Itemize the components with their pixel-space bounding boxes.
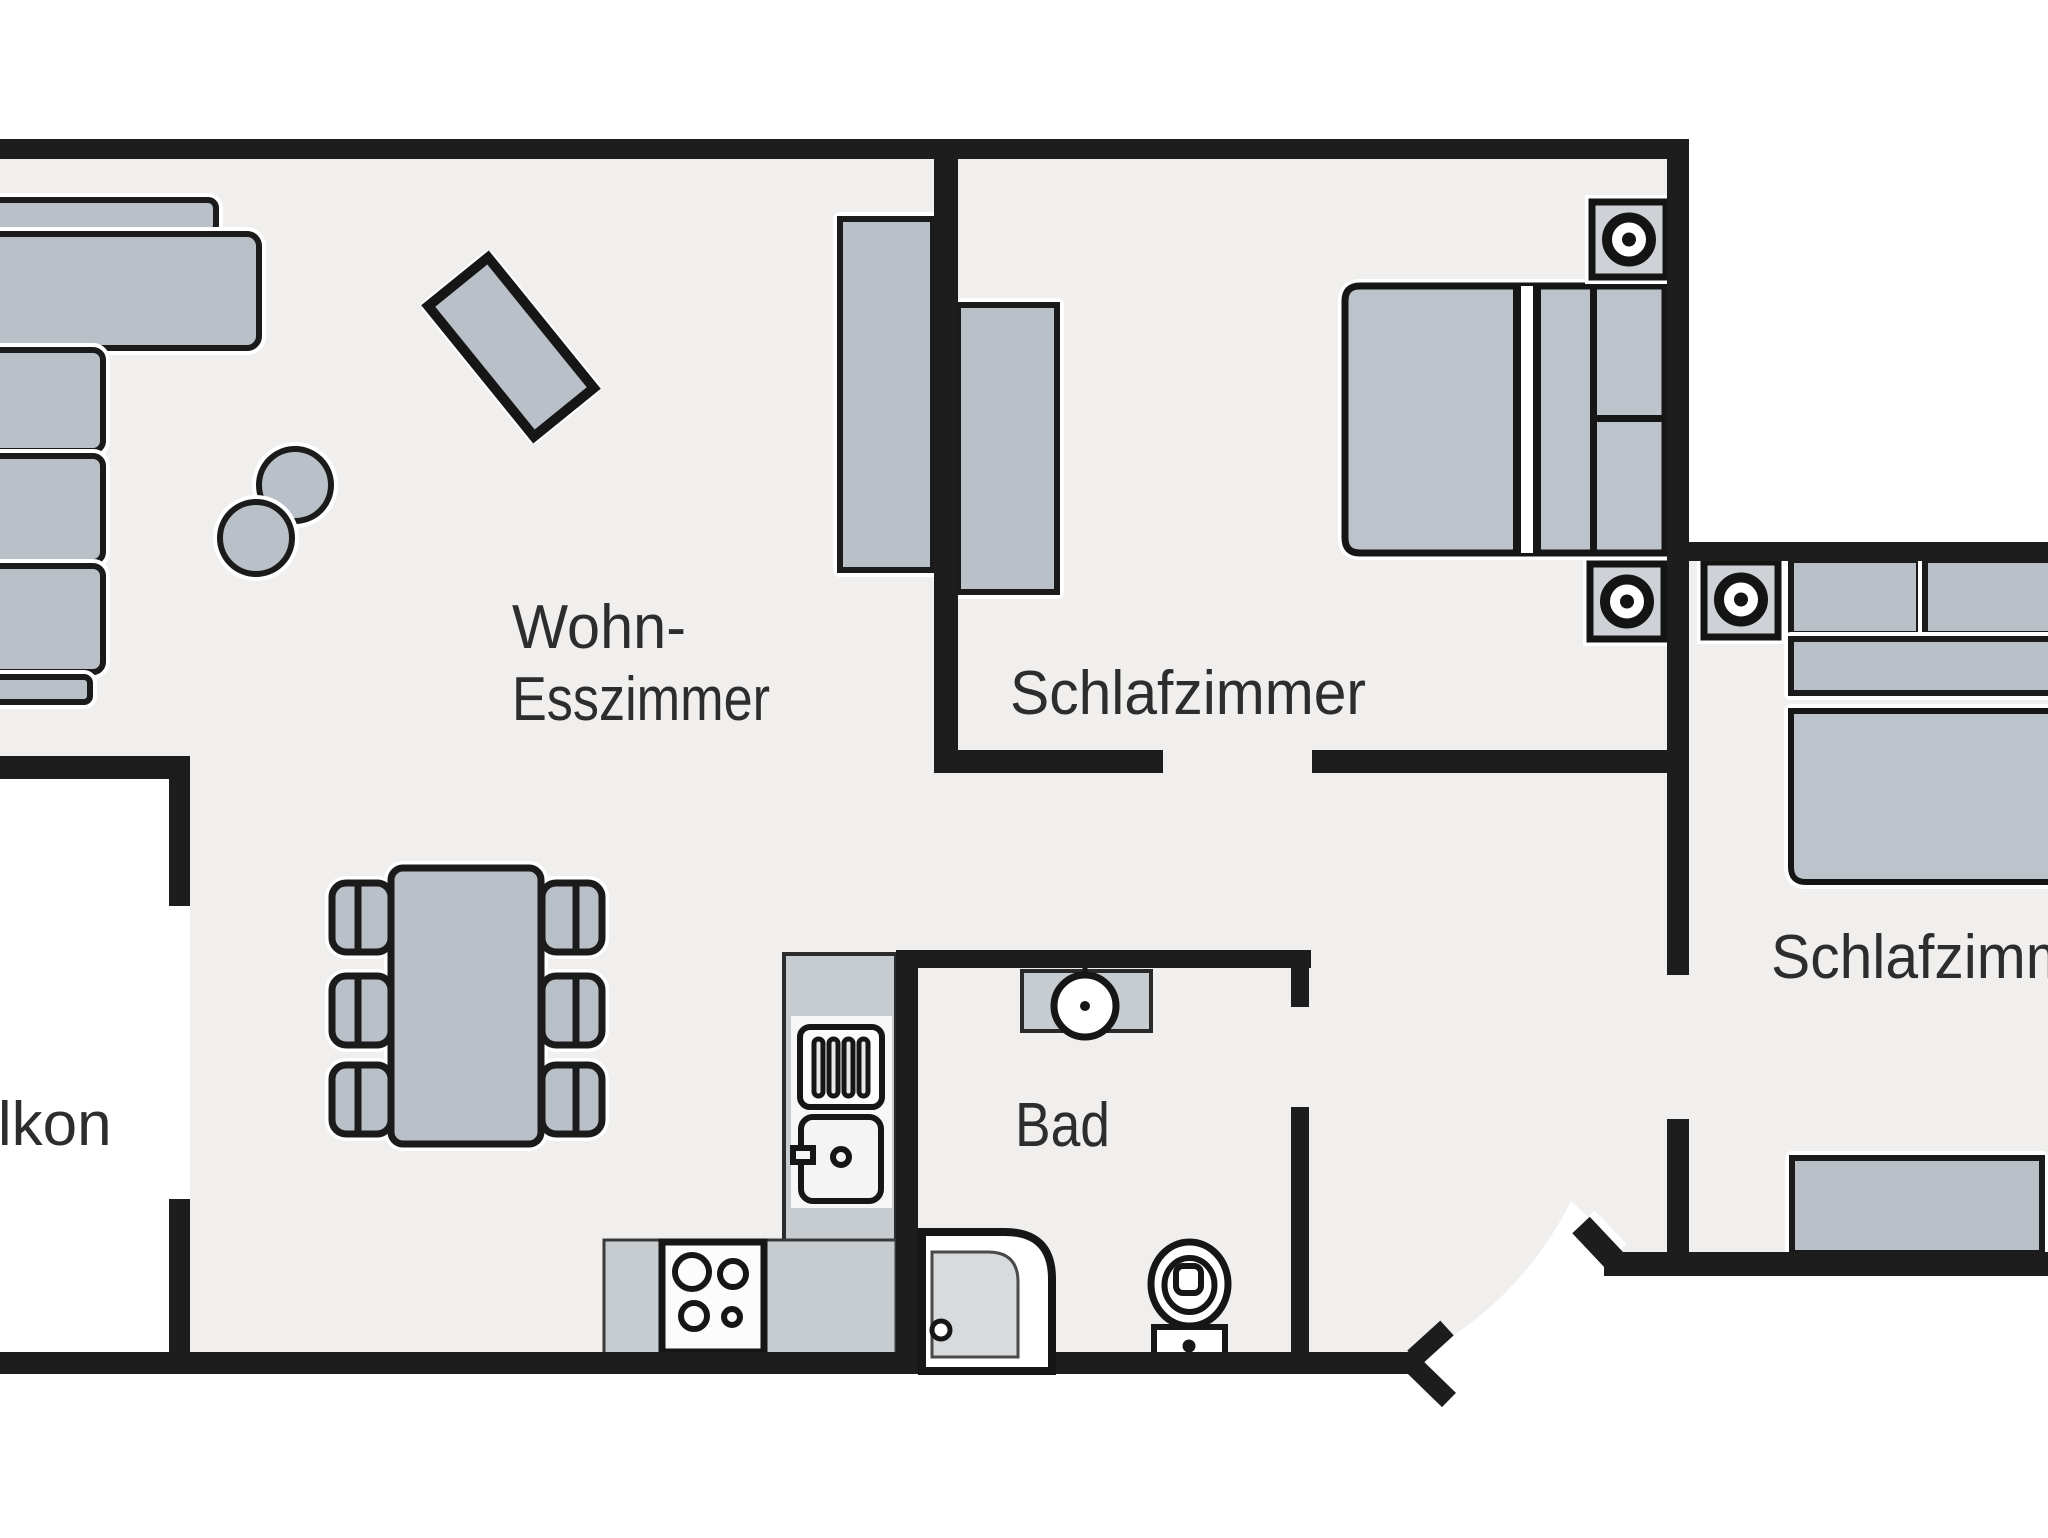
- svg-text:Balkon: Balkon: [0, 1090, 112, 1159]
- svg-text:Bad: Bad: [1015, 1091, 1110, 1160]
- svg-text:Schlafzimmer: Schlafzimmer: [1010, 659, 1366, 728]
- svg-text:Esszimmer: Esszimmer: [512, 665, 770, 734]
- svg-text:Schlafzimmer: Schlafzimmer: [1771, 923, 2048, 992]
- svg-text:Wohn-: Wohn-: [512, 593, 686, 662]
